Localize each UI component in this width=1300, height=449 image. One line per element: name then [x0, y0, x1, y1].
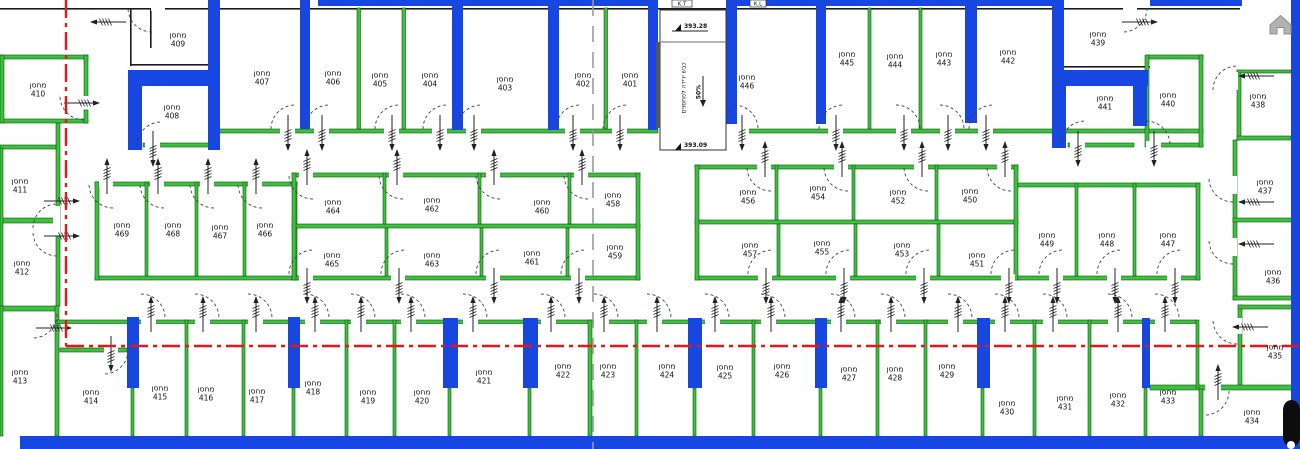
room-label: מחסן446: [739, 73, 756, 92]
room-label: מחסן433: [1160, 388, 1177, 407]
room-label: מחסן454: [810, 184, 827, 203]
floor-plan-canvas: K.T K.L מחסן401מחסן402מחסן403מחסן404מחסן…: [0, 0, 1300, 449]
room-label: מחסן468: [165, 221, 182, 240]
side-button[interactable]: [1283, 400, 1300, 449]
room-label: מחסן452: [890, 188, 907, 207]
room-label: מחסן403: [497, 75, 514, 94]
room-label: מחסן435: [1267, 343, 1284, 362]
room-label: מחסן437: [1257, 178, 1274, 197]
room-label: מחסן402: [575, 71, 592, 90]
top-wall-tags: K.T K.L: [672, 0, 766, 8]
room-label: מחסן430: [999, 399, 1016, 418]
room-label: מחסן438: [1250, 92, 1267, 111]
room-label: מחסן421: [476, 368, 493, 387]
room-label: מחסן445: [839, 50, 856, 69]
ramp-label: כבש ירידה למחסנים: [681, 63, 688, 114]
room-label: מחסן465: [324, 251, 341, 270]
home-icon[interactable]: [1270, 16, 1291, 35]
room-label: מחסן469: [114, 221, 131, 240]
room-label: מחסן432: [1110, 391, 1127, 410]
room-label: מחסן463: [424, 251, 441, 270]
room-label: מחסן457: [742, 241, 759, 260]
room-label: מחסן458: [605, 191, 622, 210]
room-label: מחסן422: [555, 362, 572, 381]
room-label: מחסן404: [422, 71, 439, 90]
room-label: מחסן451: [969, 251, 986, 270]
room-label: מחסן426: [774, 362, 791, 381]
room-label: מחסן424: [659, 362, 676, 381]
room-label: מחסן427: [841, 365, 858, 384]
level-bottom-value: 393.09: [684, 142, 707, 149]
room-label: מחסן466: [257, 221, 274, 240]
room-label: מחסן417: [249, 387, 266, 406]
room-label: מחסן409: [170, 31, 187, 50]
room-label: מחסן448: [1099, 231, 1116, 250]
room-label: מחסן410: [30, 81, 47, 100]
room-label: מחסן455: [814, 239, 831, 258]
room-label: מחסן460: [534, 198, 551, 217]
room-label: מחסן467: [212, 223, 229, 242]
room-label: מחסן442: [1000, 48, 1017, 67]
top-tag-kt: K.T: [678, 2, 687, 8]
room-label: מחסן440: [1160, 91, 1177, 110]
room-label: מחסן411: [12, 177, 29, 196]
room-label: מחסן464: [325, 198, 342, 217]
room-label: מחסן447: [1160, 231, 1177, 250]
room-label: מחסן406: [325, 69, 342, 88]
room-label: מחסן418: [305, 379, 322, 398]
ramp: [656, 10, 726, 150]
room-label: מחסן441: [1097, 94, 1114, 113]
room-label: מחסן415: [152, 384, 169, 403]
room-label: מחסן407: [254, 69, 271, 88]
room-label: מחסן450: [962, 187, 979, 206]
room-label: מחסן429: [939, 362, 956, 381]
room-label: מחסן414: [83, 388, 100, 407]
room-label: מחסן420: [414, 388, 431, 407]
room-label: מחסן416: [198, 385, 215, 404]
ramp-slope: 50%: [696, 85, 703, 99]
room-label: מחסן412: [14, 259, 31, 278]
room-label: מחסן405: [372, 71, 389, 90]
room-label: מחסן408: [164, 103, 181, 122]
room-label: מחסן456: [740, 188, 757, 207]
room-label: מחסן419: [360, 388, 377, 407]
top-tag-kl: K.L: [754, 2, 763, 8]
room-label: מחסן443: [936, 50, 953, 69]
level-top-value: 393.28: [684, 23, 707, 30]
room-label: מחסן461: [524, 249, 541, 268]
room-label: מחסן431: [1057, 394, 1074, 413]
floor-plan-drawing: K.T K.L: [0, 0, 1300, 449]
room-label: מחסן401: [622, 71, 639, 90]
room-label: מחסן459: [607, 243, 624, 262]
room-label: מחסן439: [1090, 30, 1107, 49]
room-label: מחסן425: [717, 363, 734, 382]
room-label: מחסן462: [424, 196, 441, 215]
room-label: מחסן449: [1039, 231, 1056, 250]
room-label: מחסן434: [1244, 408, 1261, 427]
room-label: מחסן453: [894, 241, 911, 260]
room-label: מחסן444: [887, 52, 904, 71]
room-label: מחסן413: [12, 368, 29, 387]
room-label: מחסן428: [887, 365, 904, 384]
room-label: מחסן436: [1265, 268, 1282, 287]
room-label: מחסן423: [600, 362, 617, 381]
